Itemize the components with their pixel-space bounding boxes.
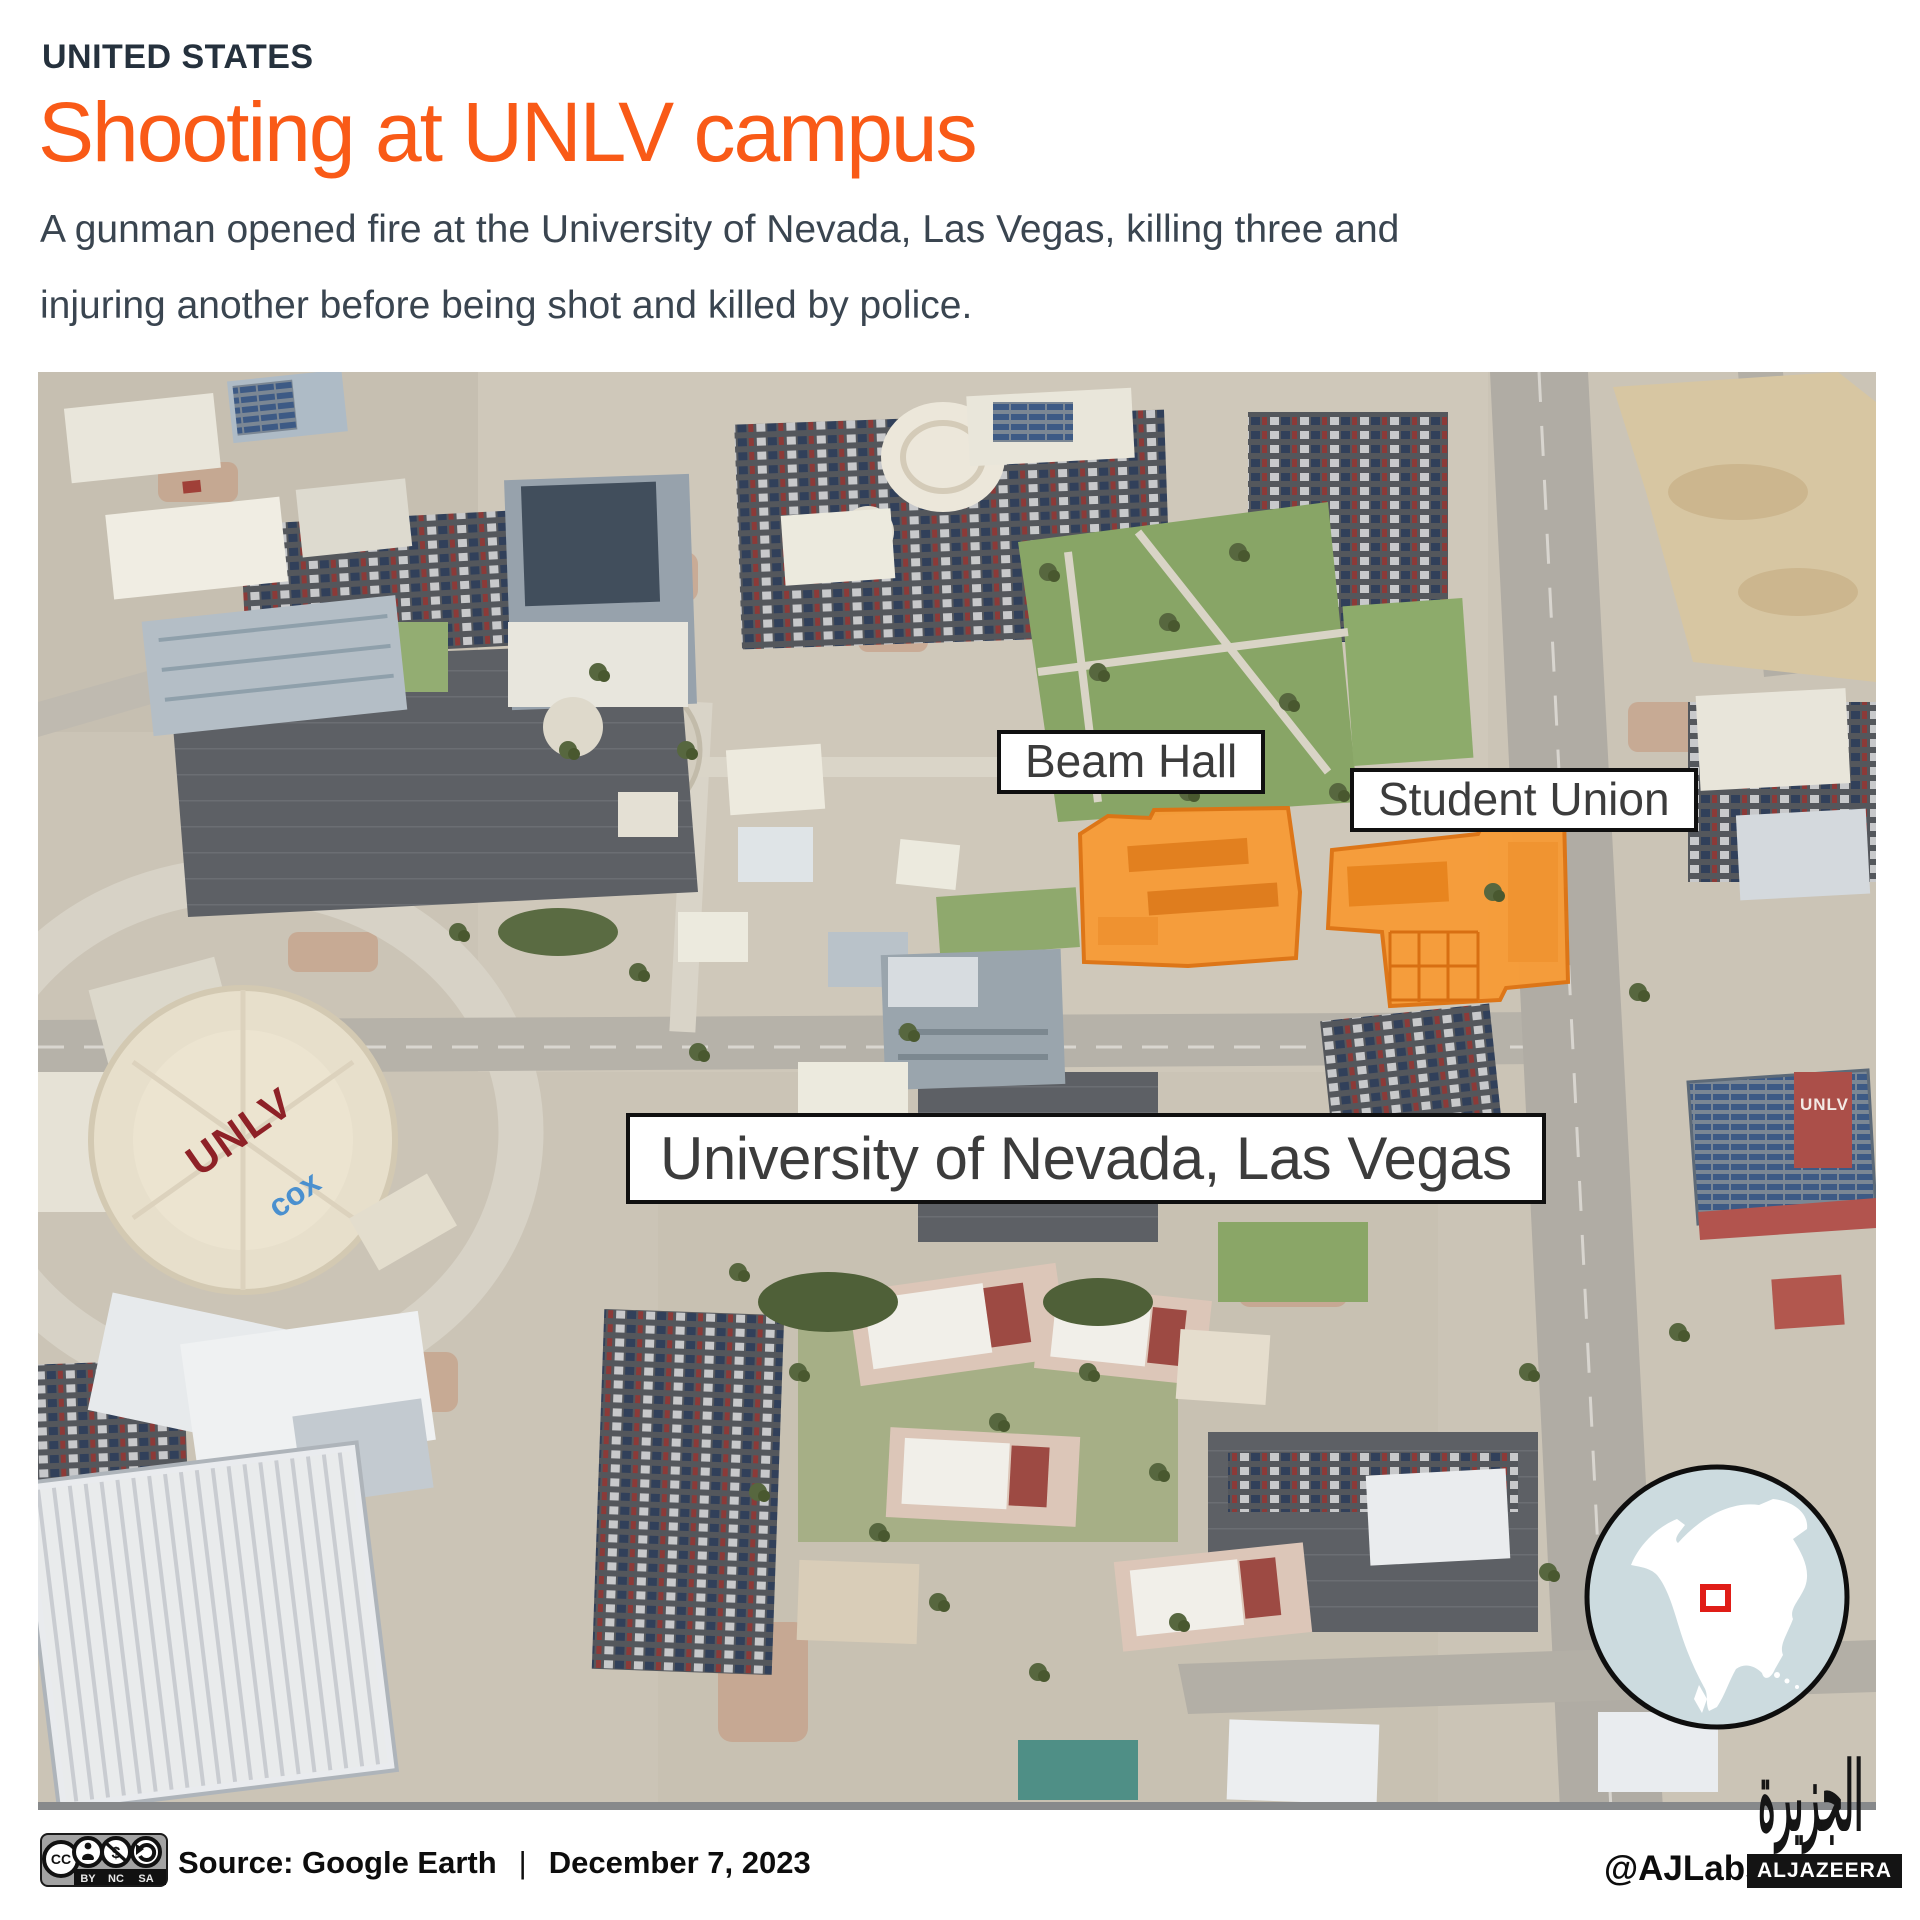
page-subtitle: A gunman opened fire at the University o… bbox=[40, 192, 1500, 344]
globe-locator-inset bbox=[1581, 1461, 1853, 1733]
beam-hall-highlight bbox=[1080, 808, 1300, 966]
student-union-label: Student Union bbox=[1350, 768, 1698, 832]
svg-text:NC: NC bbox=[108, 1873, 124, 1885]
source-label: Source: Google Earth bbox=[178, 1845, 497, 1880]
svg-text:CC: CC bbox=[51, 1851, 71, 1867]
creative-commons-badge: BY NC SA CC $ bbox=[40, 1833, 168, 1887]
no-dollar-icon: $ bbox=[102, 1838, 130, 1866]
svg-text:SA: SA bbox=[138, 1873, 153, 1885]
svg-text:UNLV: UNLV bbox=[1800, 1095, 1849, 1114]
separator: | bbox=[519, 1845, 527, 1880]
eyebrow-kicker: UNITED STATES bbox=[42, 38, 314, 77]
page-title: Shooting at UNLV campus bbox=[38, 84, 976, 181]
beam-hall-label: Beam Hall bbox=[997, 730, 1265, 794]
aljazeera-wordmark: ALJAZEERA bbox=[1747, 1854, 1902, 1888]
university-label: University of Nevada, Las Vegas bbox=[626, 1113, 1546, 1204]
person-attribution-icon bbox=[74, 1838, 102, 1866]
ajlabs-credit: @AJLabs bbox=[1604, 1849, 1765, 1889]
svg-text:BY: BY bbox=[80, 1873, 96, 1885]
infographic: UNITED STATES Shooting at UNLV campus A … bbox=[0, 0, 1920, 1920]
source-date: December 7, 2023 bbox=[549, 1845, 811, 1880]
source-line: Source: Google Earth|December 7, 2023 bbox=[178, 1845, 811, 1881]
unlv-garage: UNLV bbox=[1688, 1070, 1876, 1240]
satellite-map: UNLV cox UNLV bbox=[38, 372, 1876, 1810]
share-alike-arrow-icon bbox=[132, 1838, 160, 1866]
